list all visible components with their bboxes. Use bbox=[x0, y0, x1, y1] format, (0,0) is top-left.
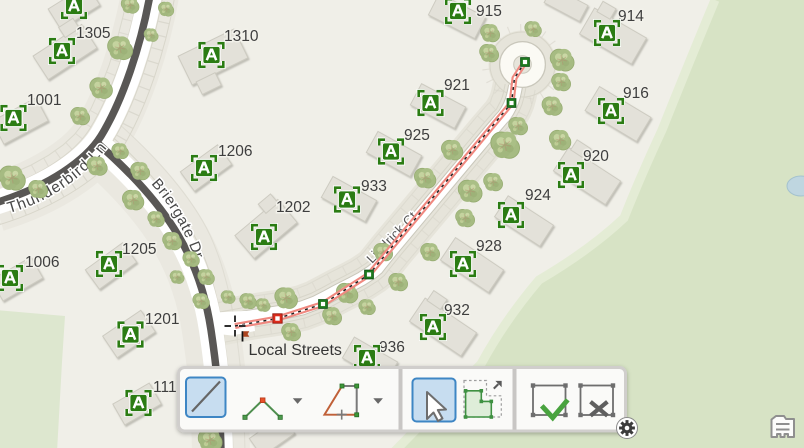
svg-text:916: 916 bbox=[623, 85, 649, 102]
svg-text:1001: 1001 bbox=[27, 92, 61, 109]
svg-text:928: 928 bbox=[476, 238, 502, 255]
svg-text:920: 920 bbox=[583, 148, 609, 165]
svg-text:915: 915 bbox=[476, 3, 502, 20]
svg-text:914: 914 bbox=[618, 8, 644, 25]
svg-text:1006: 1006 bbox=[25, 254, 59, 271]
svg-text:932: 932 bbox=[444, 302, 470, 319]
svg-text:Local Streets: Local Streets bbox=[249, 342, 342, 359]
svg-text:1206: 1206 bbox=[218, 143, 252, 160]
svg-text:1202: 1202 bbox=[276, 199, 310, 216]
svg-text:1201: 1201 bbox=[145, 311, 179, 328]
svg-text:1305: 1305 bbox=[76, 25, 110, 42]
svg-text:925: 925 bbox=[404, 127, 430, 144]
svg-text:921: 921 bbox=[444, 77, 470, 94]
svg-text:1205: 1205 bbox=[122, 241, 156, 258]
svg-text:1310: 1310 bbox=[224, 28, 259, 45]
svg-text:936: 936 bbox=[379, 339, 405, 356]
svg-text:933: 933 bbox=[361, 178, 387, 195]
svg-text:924: 924 bbox=[525, 187, 551, 204]
